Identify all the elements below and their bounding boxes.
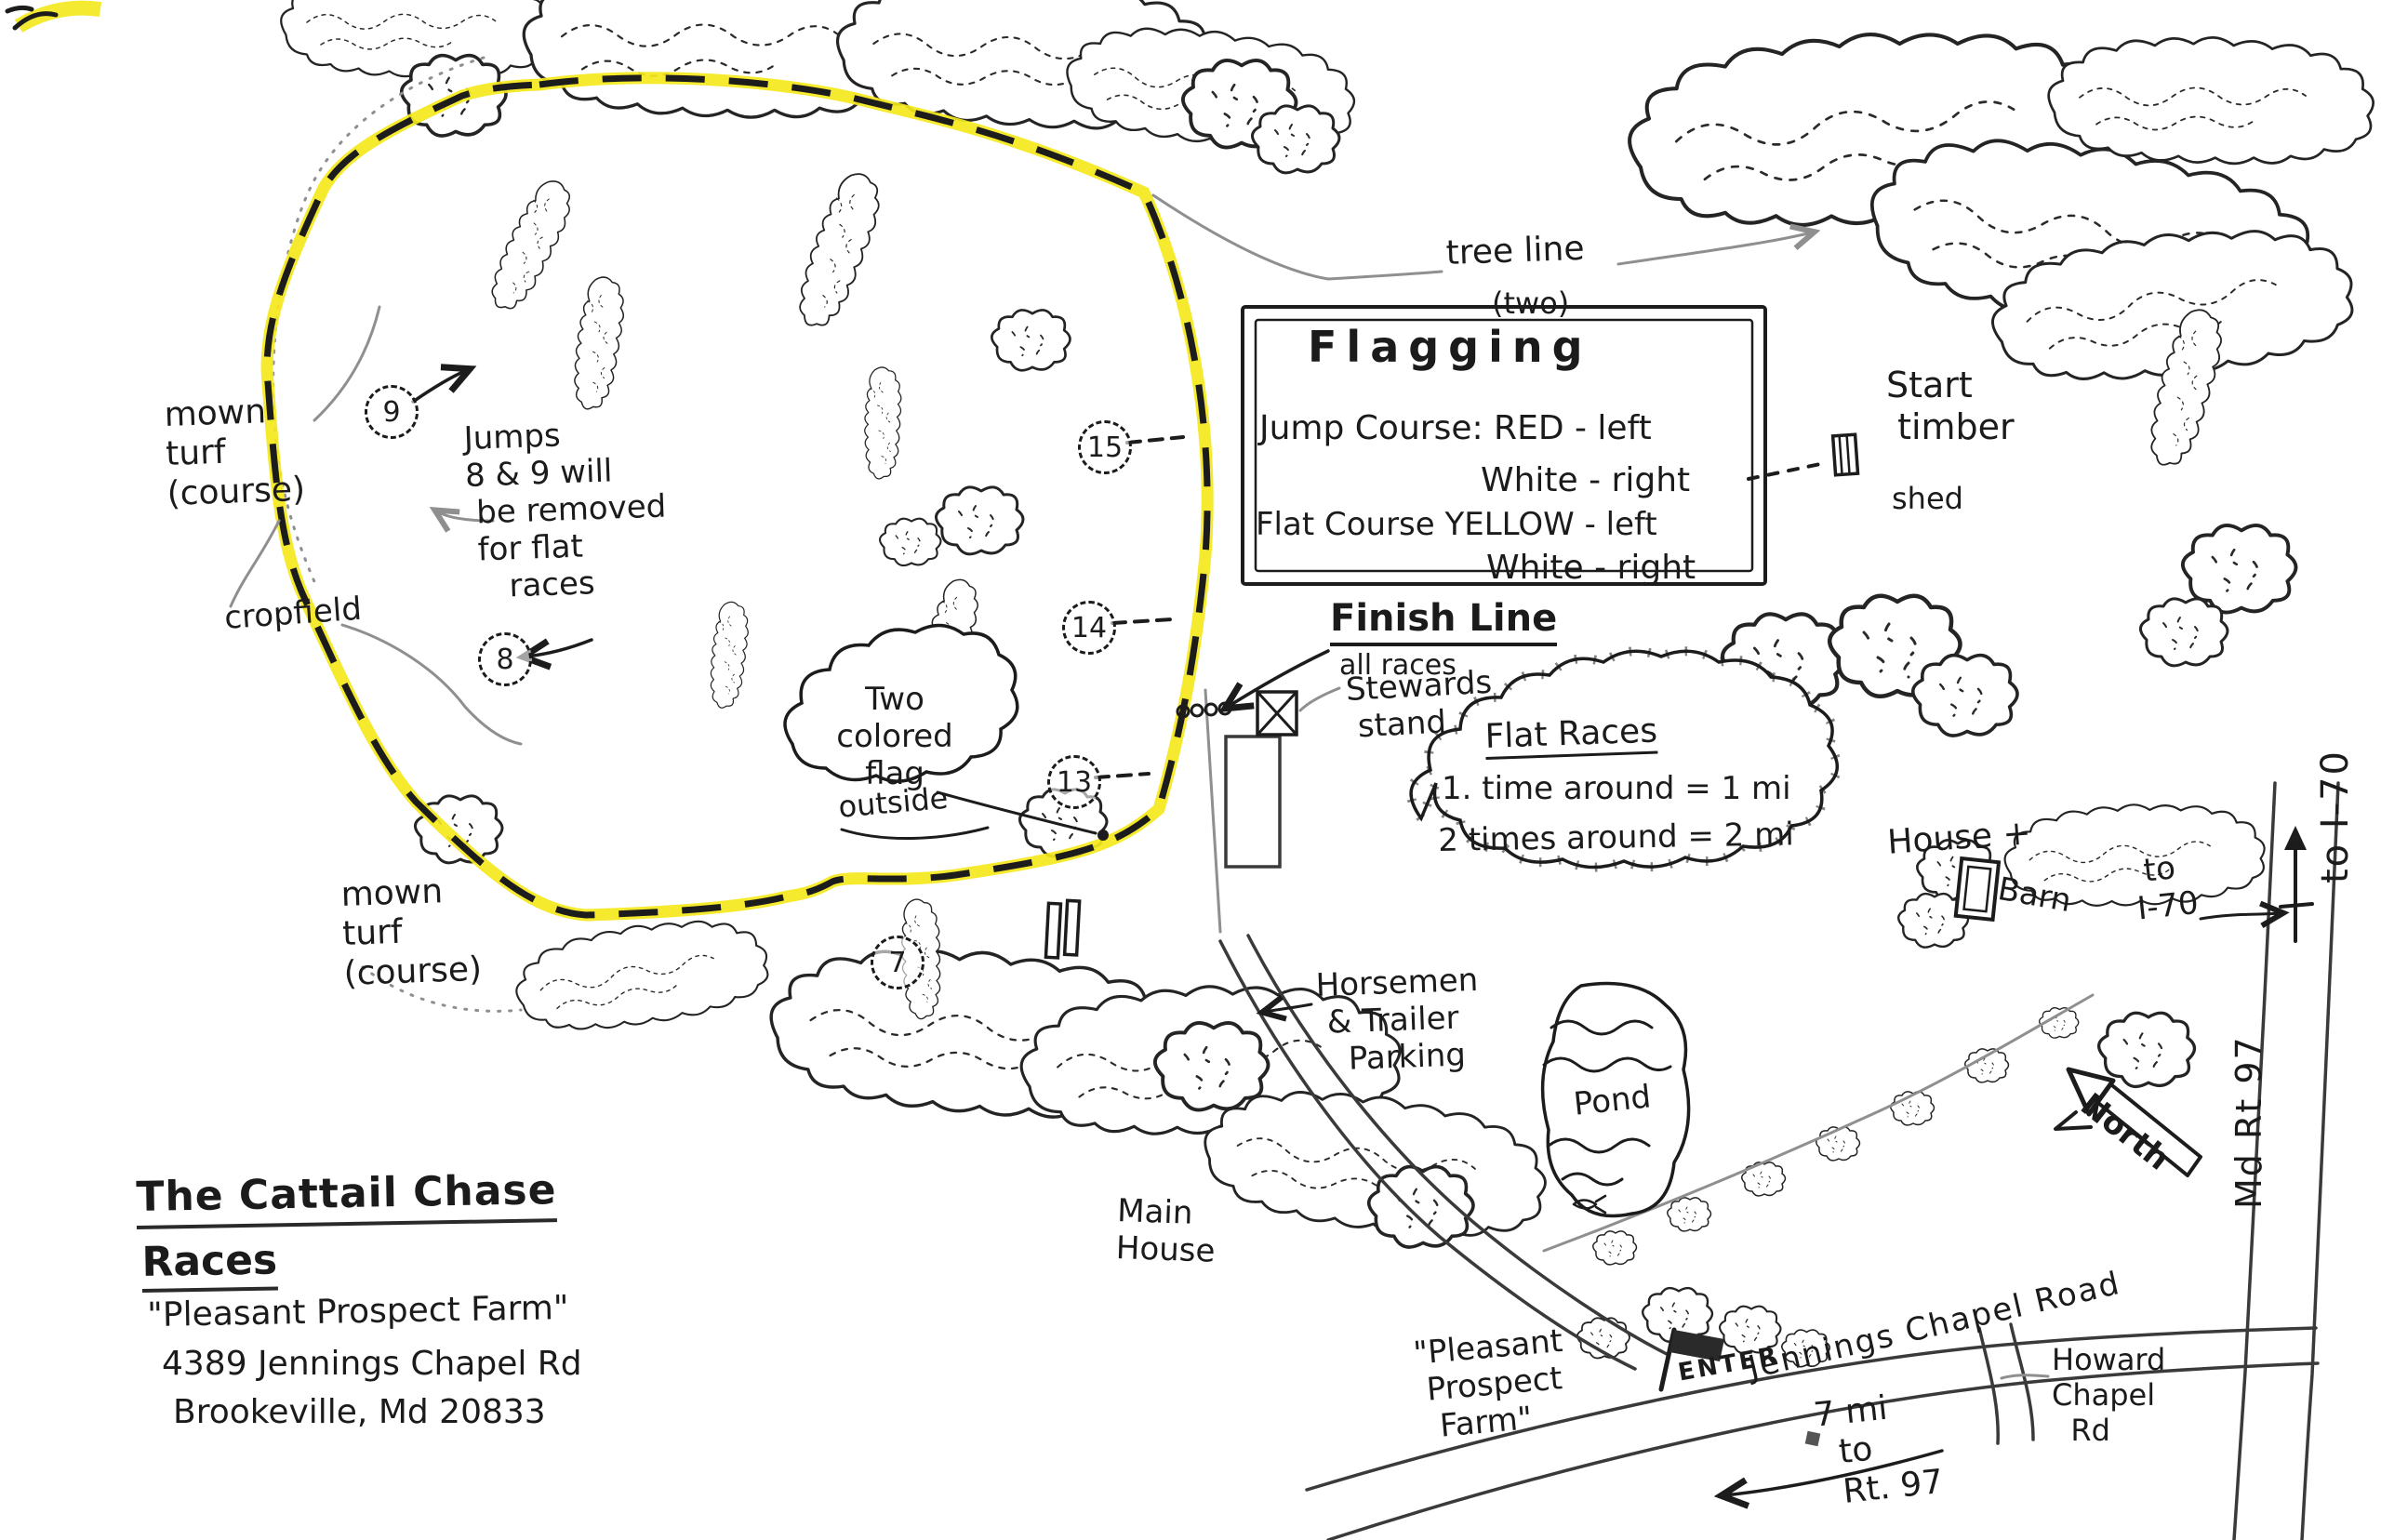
jump-marker-13: 13 bbox=[1047, 755, 1101, 809]
map-city: Brookeville, Md 20833 bbox=[173, 1393, 546, 1432]
stewards-stand-icon bbox=[1257, 692, 1297, 735]
barn-icon bbox=[1956, 858, 1999, 920]
stewards-stand-label: Stewards stand bbox=[1345, 664, 1495, 746]
map-title-line1: The Cattail Chase bbox=[136, 1166, 557, 1229]
rt97-up-arrow-icon bbox=[2281, 826, 2312, 941]
gate-icon bbox=[1045, 899, 1079, 959]
shed-icon bbox=[1833, 434, 1858, 475]
map-address: 4389 Jennings Chapel Rd bbox=[162, 1345, 582, 1384]
jump-marker-8: 8 bbox=[478, 632, 532, 686]
finish-line-label: Finish Line bbox=[1330, 597, 1557, 646]
mown-turf-lower-label: mown turf (course) bbox=[340, 871, 483, 995]
corner-smudge bbox=[7, 7, 100, 28]
jump-marker-7: 7 bbox=[871, 936, 924, 989]
flagging-flat-course-line: Flat Course YELLOW - left bbox=[1256, 506, 1657, 543]
flagging-jump-course-line2: White - right bbox=[1481, 461, 1690, 500]
main-house-label: Main House bbox=[1115, 1192, 1217, 1270]
flat-races-title: Flat Races bbox=[1484, 712, 1658, 761]
flat-races-line2: 2 times around = 2 mi bbox=[1438, 816, 1794, 859]
to-i70-label: to I-70 bbox=[2132, 847, 2201, 928]
jumps-removed-note: Jumps 8 & 9 will be removed for flat rac… bbox=[463, 414, 670, 607]
horsemen-parking-label: Horsemen & Trailer Parking bbox=[1315, 962, 1482, 1079]
flagging-title: Flagging bbox=[1308, 322, 1592, 372]
howard-chapel-rd-label: Howard Chapel Rd bbox=[2052, 1343, 2165, 1448]
miles-to-rt97-label: 7 mi to Rt. 97 bbox=[1812, 1384, 1945, 1514]
jump-marker-14: 14 bbox=[1062, 601, 1116, 655]
flagging-jump-course-line: Jump Course: RED - left bbox=[1259, 409, 1652, 448]
hand-drawn-race-map: mown turf (course) cropfield Jumps 8 & 9… bbox=[0, 0, 2381, 1540]
chute-pen bbox=[1226, 737, 1280, 867]
finish-area-icons bbox=[1177, 651, 1328, 932]
map-title-line2: Races bbox=[141, 1236, 278, 1292]
start-timber-label: Start timber bbox=[1886, 365, 2015, 448]
tree-clusters bbox=[281, 0, 2373, 1367]
tree-line-label: tree line bbox=[1445, 230, 1585, 274]
map-farm-name: "Pleasant Prospect Farm" bbox=[147, 1289, 569, 1335]
jump-marker-15: 15 bbox=[1078, 420, 1132, 474]
flagging-flat-course-line2: White - right bbox=[1486, 549, 1696, 588]
to-i70-top-label: to I-70 bbox=[2314, 750, 2358, 883]
md-rt-97-label: Md Rt 97 bbox=[2228, 1035, 2270, 1209]
shed-label: shed bbox=[1892, 482, 1963, 517]
tree-line-sub-label: (two) bbox=[1492, 286, 1569, 322]
mown-turf-upper-label: mown turf (course) bbox=[164, 392, 306, 515]
flat-races-line1: 1. time around = 1 mi bbox=[1442, 770, 1791, 807]
two-colored-flag-note: Two colored flag bbox=[811, 681, 978, 792]
jump-marker-9: 9 bbox=[365, 385, 419, 439]
farm-sign-label: "Pleasant Prospect Farm" bbox=[1412, 1322, 1571, 1447]
